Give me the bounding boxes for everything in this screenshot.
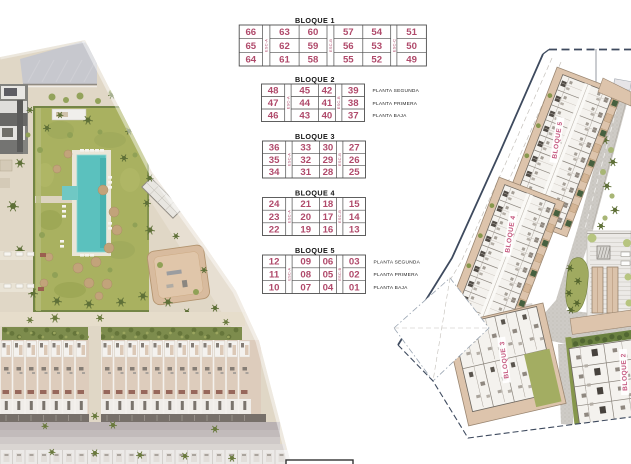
svg-text:64: 64 [245, 55, 256, 66]
svg-text:24: 24 [269, 199, 280, 210]
svg-text:40: 40 [322, 111, 333, 122]
svg-text:60: 60 [308, 27, 319, 38]
svg-text:17: 17 [323, 212, 334, 223]
svg-text:32: 32 [300, 155, 311, 166]
svg-text:23: 23 [269, 212, 280, 223]
svg-text:05: 05 [323, 270, 334, 281]
svg-text:48: 48 [268, 86, 279, 97]
svg-text:56: 56 [343, 41, 354, 52]
svg-text:BLOQUE 4: BLOQUE 4 [295, 189, 335, 198]
svg-text:PLANTA PRIMERA: PLANTA PRIMERA [373, 101, 418, 107]
svg-text:01: 01 [349, 282, 360, 293]
svg-text:34: 34 [269, 167, 280, 178]
svg-text:18: 18 [323, 199, 334, 210]
svg-text:25: 25 [349, 167, 360, 178]
svg-text:61: 61 [279, 55, 290, 66]
svg-text:ESC-A: ESC-A [286, 210, 291, 223]
svg-text:53: 53 [371, 41, 382, 52]
svg-text:44: 44 [299, 98, 310, 109]
svg-text:04: 04 [323, 282, 334, 293]
svg-text:52: 52 [371, 55, 382, 66]
svg-text:ESC-A: ESC-A [286, 267, 291, 280]
svg-text:13: 13 [349, 225, 360, 236]
svg-text:08: 08 [300, 270, 311, 281]
svg-text:PLANTA BAJA: PLANTA BAJA [373, 113, 408, 119]
svg-text:58: 58 [308, 55, 319, 66]
svg-text:ESC-C: ESC-C [391, 39, 396, 52]
svg-text:PLANTA BAJA: PLANTA BAJA [374, 285, 409, 291]
svg-text:12: 12 [269, 257, 280, 268]
svg-text:26: 26 [349, 155, 360, 166]
svg-text:BLOQUE 3: BLOQUE 3 [295, 132, 335, 141]
svg-text:63: 63 [279, 27, 290, 38]
svg-text:07: 07 [300, 282, 311, 293]
svg-text:06: 06 [323, 257, 334, 268]
svg-text:47: 47 [268, 98, 279, 109]
svg-text:28: 28 [323, 167, 334, 178]
svg-text:42: 42 [322, 86, 333, 97]
svg-text:62: 62 [279, 41, 290, 52]
svg-text:49: 49 [406, 55, 417, 66]
svg-text:51: 51 [406, 27, 417, 38]
svg-text:54: 54 [371, 27, 382, 38]
svg-text:PLANTA PRIMERA: PLANTA PRIMERA [374, 272, 419, 278]
svg-text:ESC-A: ESC-A [285, 96, 290, 109]
svg-text:14: 14 [349, 212, 360, 223]
svg-text:66: 66 [245, 27, 256, 38]
svg-text:20: 20 [300, 212, 311, 223]
svg-text:02: 02 [349, 270, 360, 281]
svg-text:15: 15 [349, 199, 360, 210]
svg-text:BLOQUE 2: BLOQUE 2 [295, 75, 335, 84]
svg-text:30: 30 [323, 143, 334, 154]
svg-text:57: 57 [343, 27, 354, 38]
svg-text:16: 16 [323, 225, 334, 236]
svg-text:50: 50 [406, 41, 417, 52]
svg-text:35: 35 [269, 155, 280, 166]
svg-text:19: 19 [300, 225, 311, 236]
svg-text:43: 43 [299, 111, 310, 122]
svg-text:59: 59 [308, 41, 319, 52]
svg-text:03: 03 [349, 257, 360, 268]
svg-text:21: 21 [300, 199, 311, 210]
svg-text:ESC-B: ESC-B [337, 153, 342, 166]
svg-text:27: 27 [349, 143, 360, 154]
svg-text:45: 45 [299, 86, 310, 97]
svg-text:ESC-B: ESC-B [328, 39, 333, 52]
svg-text:ESC-B: ESC-B [336, 96, 341, 109]
svg-text:PLANTA SEGUNDA: PLANTA SEGUNDA [374, 259, 421, 265]
svg-text:10: 10 [269, 282, 280, 293]
svg-text:BLOQUE 5: BLOQUE 5 [295, 246, 335, 255]
svg-text:65: 65 [245, 41, 256, 52]
svg-text:38: 38 [348, 98, 359, 109]
svg-text:29: 29 [323, 155, 334, 166]
svg-text:37: 37 [348, 111, 359, 122]
svg-text:55: 55 [343, 55, 354, 66]
svg-text:46: 46 [268, 111, 279, 122]
svg-text:31: 31 [300, 167, 311, 178]
svg-text:22: 22 [269, 225, 280, 236]
svg-text:09: 09 [300, 257, 311, 268]
svg-text:PLANTA SEGUNDA: PLANTA SEGUNDA [373, 88, 420, 94]
svg-text:41: 41 [322, 98, 333, 109]
svg-text:BLOQUE 1: BLOQUE 1 [295, 16, 335, 25]
svg-text:36: 36 [269, 143, 280, 154]
svg-text:11: 11 [269, 270, 280, 281]
svg-text:ESC-A: ESC-A [286, 153, 291, 166]
svg-text:ESC-B: ESC-B [337, 210, 342, 223]
svg-text:ESC-A: ESC-A [264, 39, 269, 52]
svg-text:33: 33 [300, 143, 311, 154]
svg-text:ESC-B: ESC-B [337, 267, 342, 280]
svg-text:39: 39 [348, 86, 359, 97]
